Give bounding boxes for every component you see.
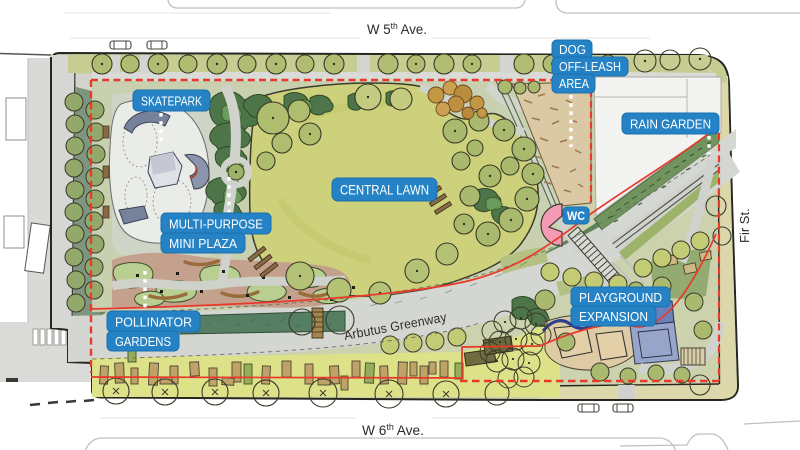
svg-text:PLAYGROUND: PLAYGROUND	[579, 290, 662, 305]
svg-text:MINI PLAZA: MINI PLAZA	[169, 236, 237, 251]
svg-text:OFF-LEASH: OFF-LEASH	[559, 59, 621, 74]
svg-text:W 6th Ave.: W 6th Ave.	[362, 422, 424, 438]
svg-text:MULTI-PURPOSE: MULTI-PURPOSE	[169, 217, 263, 232]
svg-text:SKATEPARK: SKATEPARK	[141, 94, 202, 109]
svg-text:Fir St.: Fir St.	[737, 208, 752, 243]
svg-text:POLLINATOR: POLLINATOR	[115, 315, 192, 330]
svg-text:CENTRAL LAWN: CENTRAL LAWN	[340, 182, 429, 198]
svg-text:WC: WC	[567, 209, 585, 223]
svg-text:DOG: DOG	[559, 42, 586, 57]
svg-text:AREA: AREA	[559, 76, 589, 91]
svg-text:GARDENS: GARDENS	[115, 334, 171, 349]
svg-text:RAIN GARDEN: RAIN GARDEN	[630, 117, 711, 132]
svg-text:W 5th Ave.: W 5th Ave.	[367, 21, 427, 37]
svg-text:EXPANSION: EXPANSION	[579, 309, 648, 324]
